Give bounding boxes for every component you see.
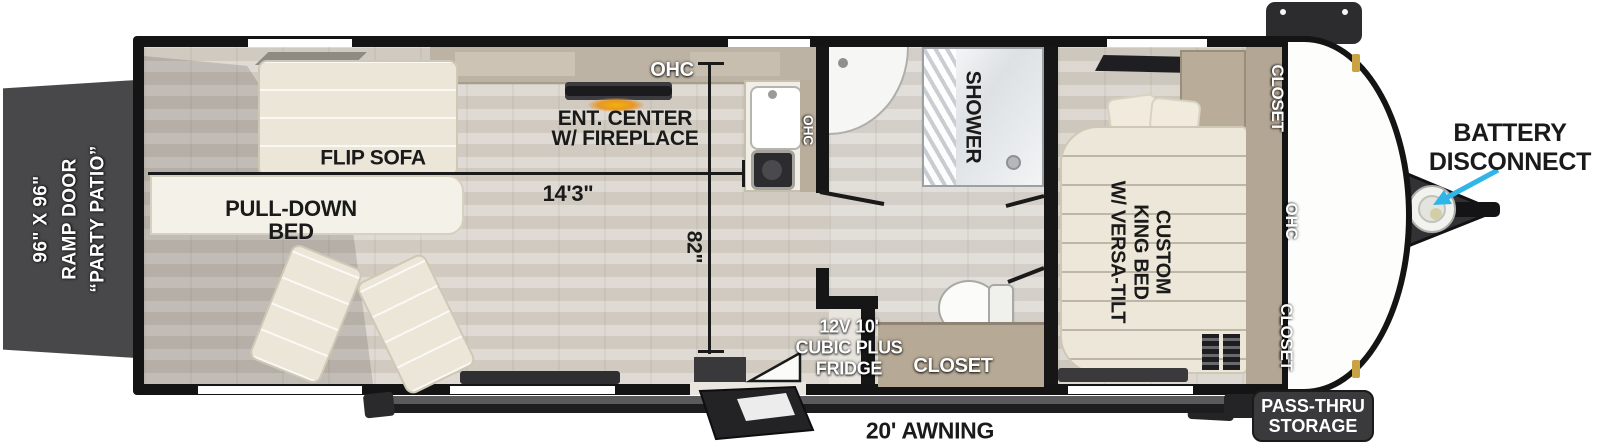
front-closet-bottom-label: CLOSET [1277, 303, 1295, 370]
length-dimension-line [148, 172, 744, 175]
king-bed-label-line1: CUSTOM [1151, 181, 1173, 323]
flip-sofa-label: FLIP SOFA [320, 148, 425, 171]
shower-label: SHOWER [961, 71, 984, 164]
king-bed-label-line2: KING BED [1129, 181, 1151, 323]
shower-drain [1006, 155, 1021, 170]
floorplan-diagram: 96" X 96" RAMP DOOR “PARTY PATIO” OHC SH… [0, 0, 1600, 445]
battery-line2: DISCONNECT [1429, 148, 1591, 177]
entry-door-opening [690, 382, 806, 395]
window [248, 39, 352, 47]
front-ohc-label: OHC [1282, 203, 1300, 240]
pass-thru-line2: STORAGE [1269, 416, 1358, 436]
fridge-label: 12V 10' CUBIC PLUS FRIDGE [795, 317, 902, 380]
sink-faucet [838, 58, 848, 68]
ramp-door-label-line3: “PARTY PATIO” [84, 145, 113, 292]
tongue-jack [1448, 202, 1500, 217]
bedroom-wall [1044, 47, 1058, 384]
propane-tank [1409, 186, 1455, 232]
ent-center-line1: ENT. CENTER [552, 109, 699, 129]
awning-rail-upper [372, 396, 1252, 404]
pull-down-bed-line1: PULL-DOWN [225, 197, 357, 220]
fridge-label-line3: FRIDGE [795, 359, 902, 380]
ent-center-cabinet-panel [455, 52, 575, 76]
awning-end-cap [363, 391, 395, 418]
battery-arrow-head [1433, 190, 1452, 205]
king-bed-label-line3: W/ VERSA-TILT [1106, 181, 1128, 323]
entry-mat [460, 371, 620, 384]
ramp-door-label: 96" X 96" RAMP DOOR “PARTY PATIO” [27, 145, 113, 292]
roof-box-screw [1280, 9, 1286, 15]
fridge-label-line2: CUBIC PLUS [795, 338, 902, 359]
bath-closet-label: CLOSET [913, 356, 992, 378]
ohc-label: OHC [650, 60, 694, 82]
pull-down-bed-line2: BED [225, 220, 357, 243]
pass-thru-line1: PASS-THRU [1261, 396, 1365, 416]
kitchen-faucet [768, 90, 777, 99]
width-dimension-tick-bottom [698, 350, 724, 353]
bath-wall-rear-upper [816, 47, 829, 193]
pull-down-bed-label: PULL-DOWN BED [225, 197, 357, 243]
battery-line1: BATTERY [1429, 119, 1591, 148]
bedroom-mat [1058, 368, 1188, 382]
front-closet-top-label: CLOSET [1268, 64, 1286, 131]
garage-length-label: 14'3" [543, 182, 594, 206]
front-cap [1282, 36, 1412, 395]
kitchen-ohc-label: OHC [800, 115, 815, 145]
length-dimension-tick [742, 160, 745, 187]
clearance-light [1352, 360, 1360, 378]
floor-register [1223, 334, 1240, 370]
propane-valve [1430, 208, 1442, 220]
propane-tank-collar [1419, 196, 1445, 222]
ent-center-line2: W/ FIREPLACE [552, 129, 699, 149]
ramp-door-label-line1: 96" X 96" [27, 145, 56, 292]
a-frame-triangle [1398, 170, 1496, 250]
king-bed-label: CUSTOM KING BED W/ VERSA-TILT [1106, 181, 1173, 323]
window [450, 386, 615, 394]
ramp-door-label-line2: RAMP DOOR [56, 145, 85, 292]
shower-door-stripes [924, 49, 956, 185]
width-dimension-tick-top [698, 62, 724, 65]
battery-disconnect-label: BATTERY DISCONNECT [1429, 119, 1591, 177]
window [198, 386, 362, 394]
window [728, 39, 810, 47]
window [1068, 386, 1193, 394]
pass-thru-storage-tag: PASS-THRU STORAGE [1252, 390, 1374, 442]
entry-door-well [694, 357, 746, 382]
clearance-light [1352, 54, 1360, 72]
stove-burner [762, 160, 782, 180]
roof-box-screw [1342, 9, 1348, 15]
fridge-label-line1: 12V 10' [795, 317, 902, 338]
interior-width-label: 82" [682, 231, 705, 263]
width-dimension-line [708, 64, 711, 354]
floor-register [1202, 334, 1219, 370]
window [1107, 39, 1207, 47]
ent-center-label: ENT. CENTER W/ FIREPLACE [552, 109, 699, 149]
awning-rail-lower [372, 404, 1252, 413]
awning-label: 20' AWNING [866, 419, 994, 444]
